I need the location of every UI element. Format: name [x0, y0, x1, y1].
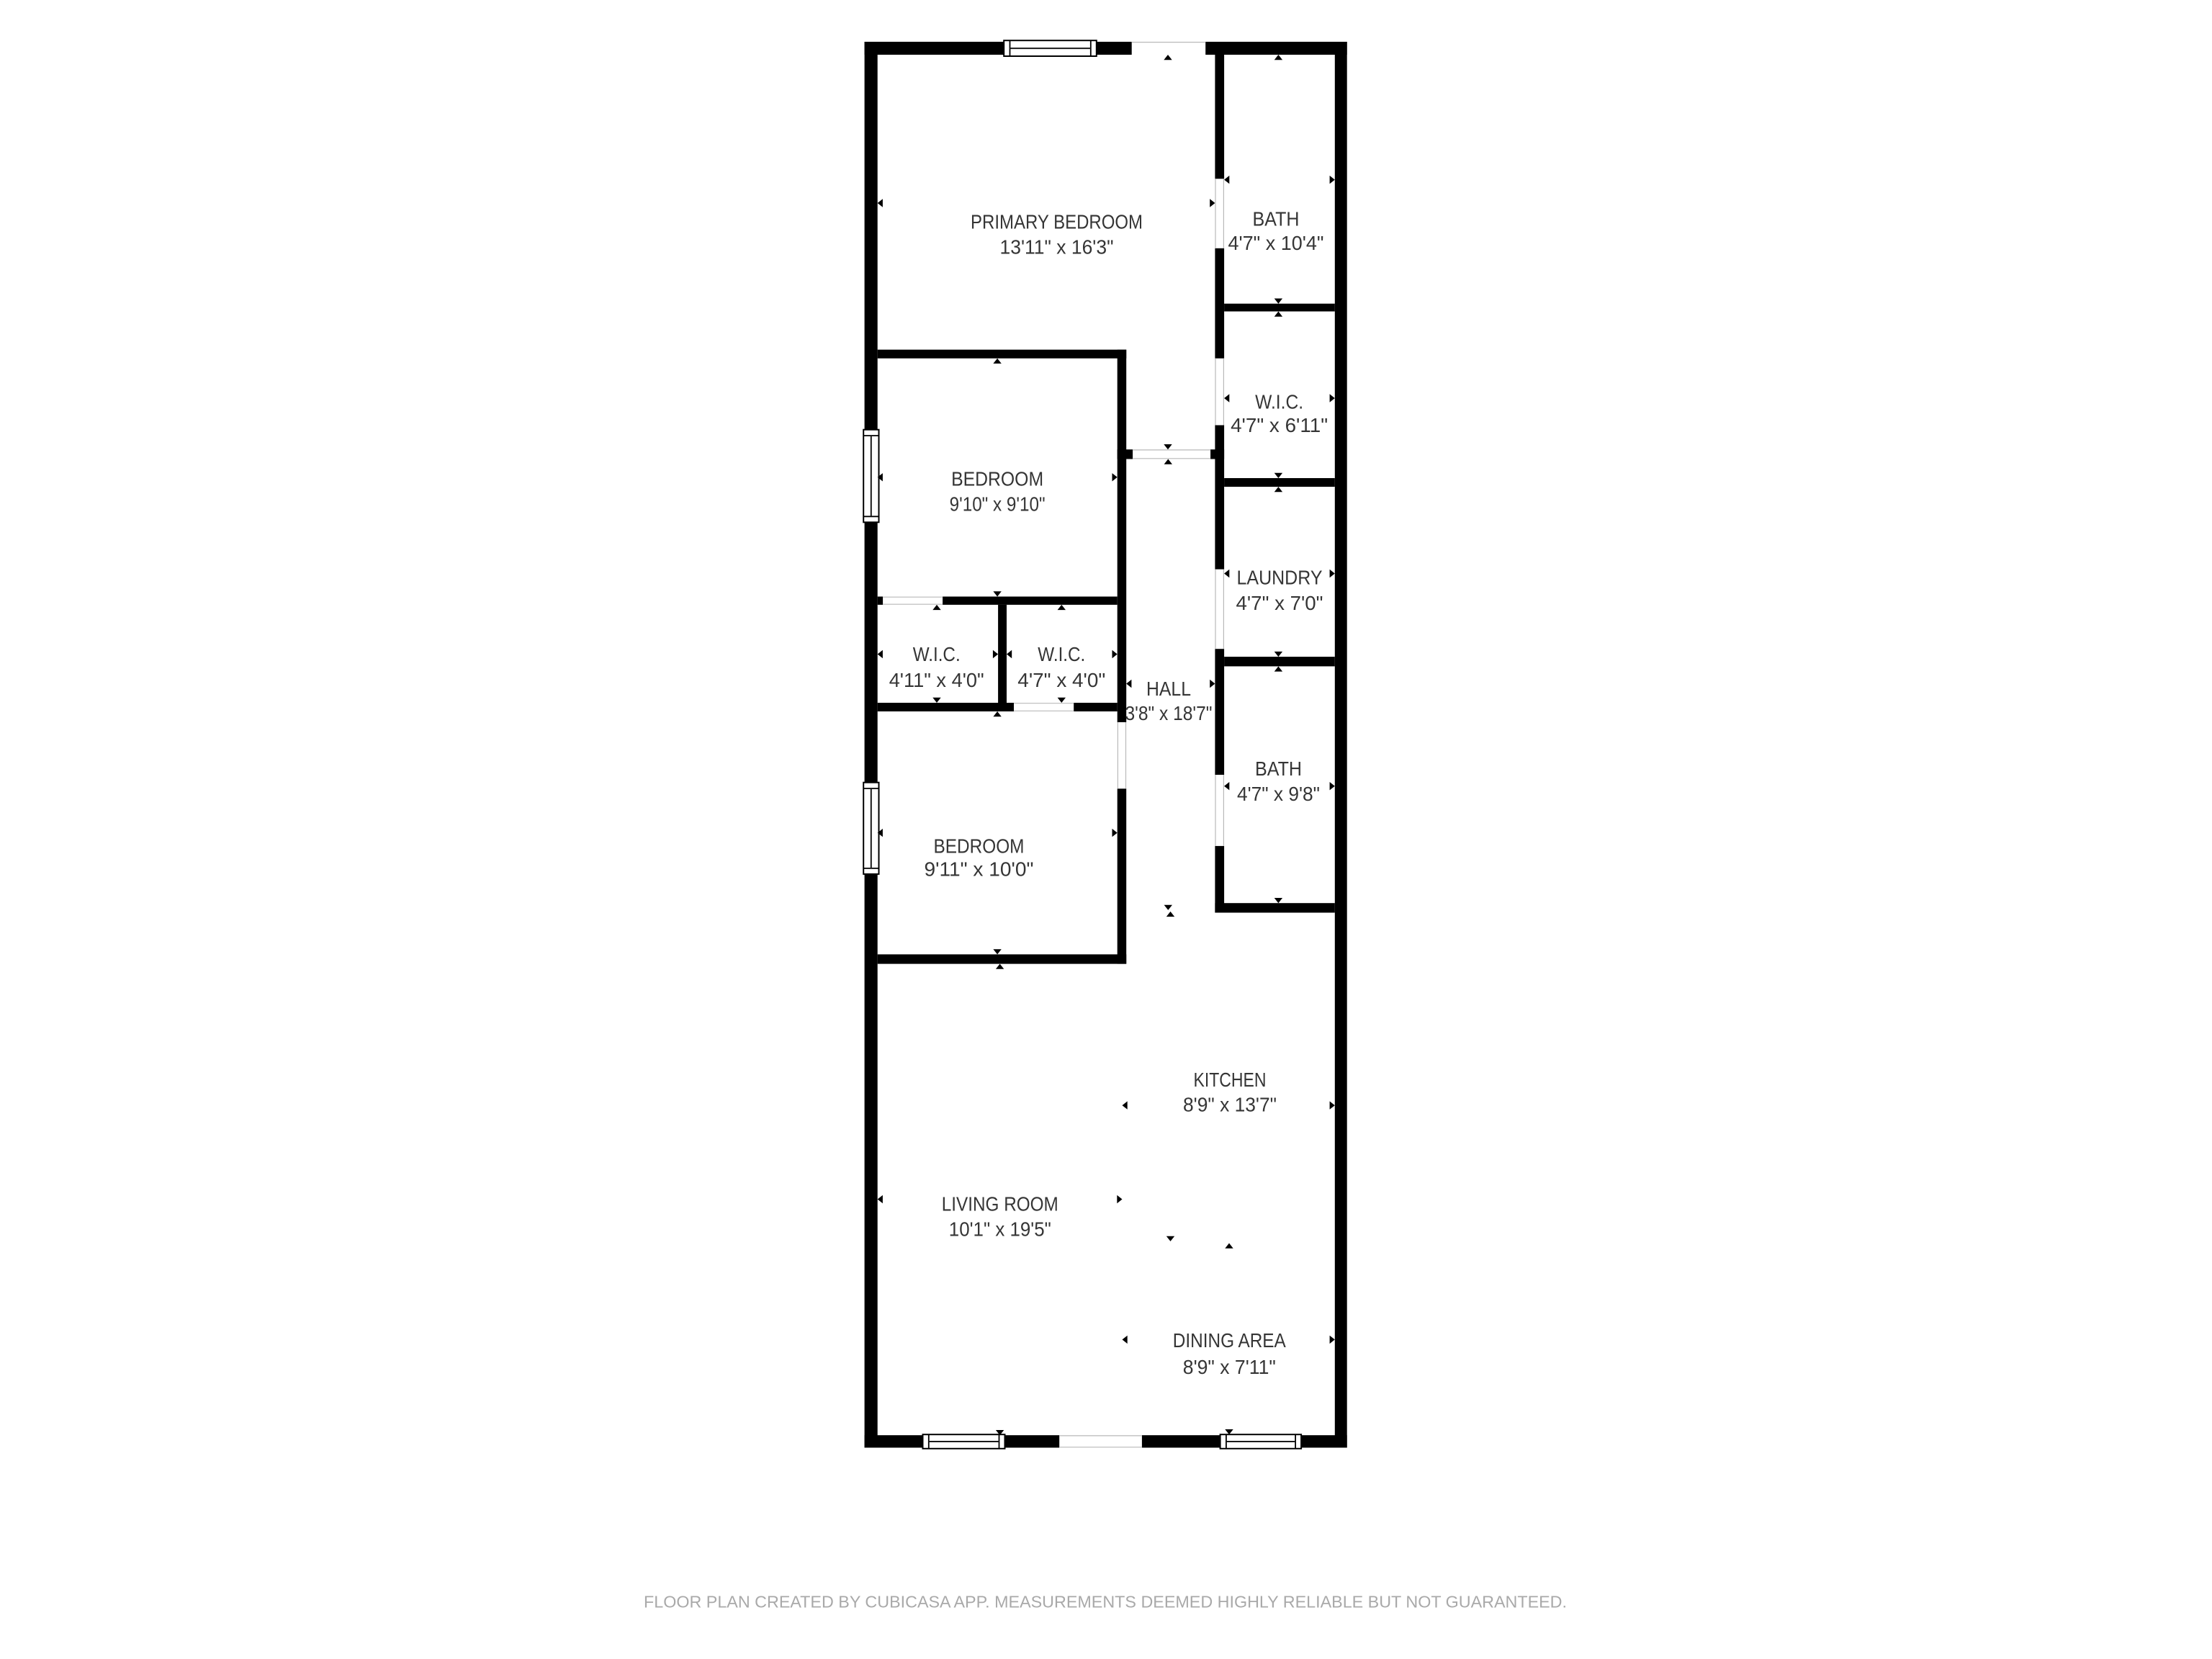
- svg-text:4'7" x 4'0": 4'7" x 4'0": [1017, 669, 1105, 691]
- svg-text:KITCHEN: KITCHEN: [1194, 1069, 1267, 1091]
- svg-text:BEDROOM: BEDROOM: [934, 835, 1025, 857]
- svg-text:10'1" x 19'5": 10'1" x 19'5": [949, 1218, 1051, 1241]
- svg-text:DINING AREA: DINING AREA: [1173, 1329, 1286, 1352]
- svg-text:4'7" x 9'8": 4'7" x 9'8": [1237, 783, 1320, 805]
- svg-text:HALL: HALL: [1146, 678, 1191, 700]
- svg-text:BATH: BATH: [1255, 757, 1302, 780]
- svg-text:4'7" x 6'11": 4'7" x 6'11": [1231, 414, 1328, 436]
- svg-text:4'11" x 4'0": 4'11" x 4'0": [889, 669, 984, 691]
- svg-text:LIVING ROOM: LIVING ROOM: [942, 1193, 1058, 1215]
- svg-text:8'9" x 13'7": 8'9" x 13'7": [1183, 1094, 1277, 1116]
- svg-text:W.I.C.: W.I.C.: [913, 643, 961, 665]
- svg-text:LAUNDRY: LAUNDRY: [1237, 567, 1323, 589]
- svg-text:BEDROOM: BEDROOM: [951, 468, 1043, 490]
- svg-text:8'9" x 7'11": 8'9" x 7'11": [1183, 1356, 1276, 1378]
- svg-text:PRIMARY BEDROOM: PRIMARY BEDROOM: [971, 211, 1143, 233]
- svg-text:4'7" x 10'4": 4'7" x 10'4": [1228, 232, 1324, 254]
- svg-text:FLOOR PLAN CREATED BY CUBICASA: FLOOR PLAN CREATED BY CUBICASA APP. MEAS…: [644, 1593, 1567, 1611]
- svg-text:13'11" x 16'3": 13'11" x 16'3": [1000, 235, 1114, 258]
- svg-text:W.I.C.: W.I.C.: [1038, 643, 1085, 665]
- svg-text:9'11" x 10'0": 9'11" x 10'0": [925, 858, 1034, 881]
- svg-text:BATH: BATH: [1253, 208, 1300, 230]
- svg-text:W.I.C.: W.I.C.: [1255, 391, 1303, 413]
- svg-text:4'7" x 7'0": 4'7" x 7'0": [1236, 592, 1323, 614]
- svg-text:3'8" x 18'7": 3'8" x 18'7": [1125, 702, 1213, 724]
- svg-text:9'10" x 9'10": 9'10" x 9'10": [950, 493, 1046, 516]
